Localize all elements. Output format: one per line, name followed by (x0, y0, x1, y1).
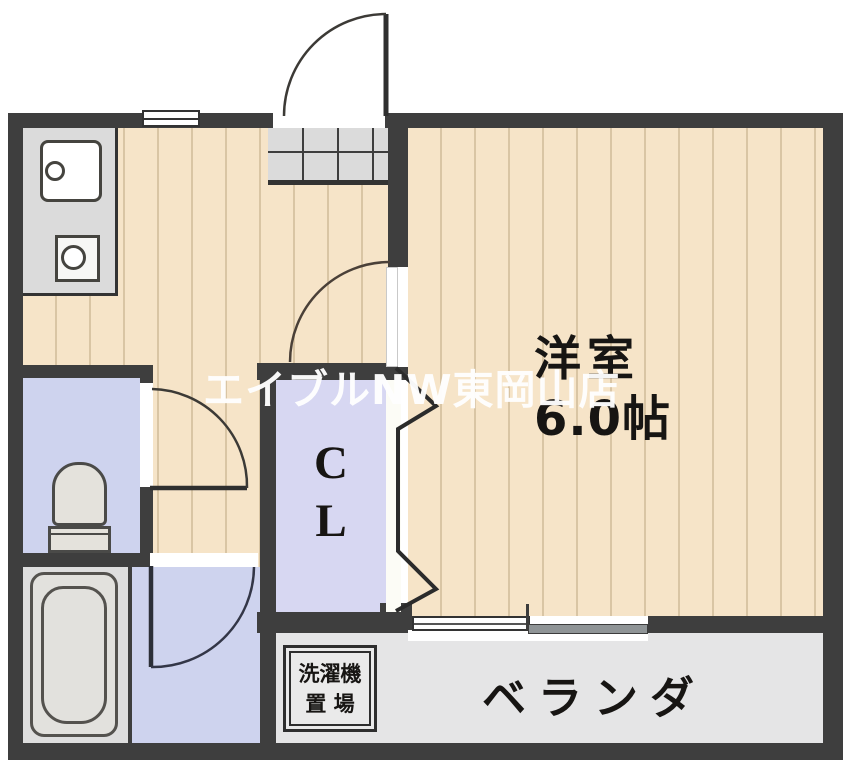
wall-outer-top (8, 113, 843, 128)
opening-washroom-door (150, 553, 258, 567)
floor-washroom (132, 567, 260, 743)
genkan-grid-line-h (268, 151, 388, 153)
veranda-label: ベランダ (482, 662, 706, 726)
wall-closet-left (260, 363, 276, 743)
wall-bath-separator (128, 567, 132, 743)
closet-label-l: L (308, 492, 354, 550)
wall-toilet-top (8, 365, 153, 378)
wall-outer-left (8, 113, 23, 760)
bathtub-inner (41, 586, 107, 724)
mainroom-door-leaf (386, 267, 398, 367)
veranda-window-right-panel (528, 624, 648, 634)
veranda-window-left-panel (412, 616, 530, 631)
wall-mainroom-left-upper (388, 128, 408, 267)
wall-washroom-top (8, 553, 150, 567)
genkan-step-edge (268, 180, 388, 185)
washing-machine-space-inner: 洗濯機 置 場 (289, 651, 371, 726)
entrance-door-arc (284, 14, 386, 116)
kitchen-window-rail (144, 118, 198, 120)
toilet-bowl (52, 462, 107, 526)
closet-label-c: C (308, 434, 354, 492)
wall-outer-right (823, 113, 843, 760)
kitchen-sink-faucet (45, 161, 65, 181)
floor-genkan (268, 128, 388, 184)
laundry-label-line1: 洗濯機 (299, 659, 362, 689)
opening-toilet-door (140, 383, 153, 487)
genkan-grid-line (302, 128, 304, 182)
wall-mainroom-bottom (648, 616, 823, 633)
wall-toilet-right-lower (140, 487, 153, 553)
toilet-tank (48, 526, 111, 553)
toilet-seat-line (50, 533, 109, 535)
wall-toilet-right-upper (140, 365, 153, 384)
genkan-grid-line (337, 128, 339, 182)
closet-label: C L (308, 434, 354, 550)
wall-outer-bottom (8, 743, 843, 760)
floorplan-canvas: 洗濯機 置 場 洋室 6.0帖 C L ベランダ エイブルNW東岡山店 (0, 0, 846, 762)
opening-entrance (273, 110, 385, 128)
veranda-window-left-rail (414, 623, 528, 625)
kitchen-window (142, 110, 200, 127)
genkan-grid-line (372, 128, 374, 182)
stove-burner-icon (61, 245, 86, 270)
veranda-window-stile (526, 604, 529, 630)
washing-machine-space: 洗濯機 置 場 (283, 645, 377, 732)
laundry-label-line2: 置 場 (305, 689, 354, 719)
store-watermark: エイブルNW東岡山店 (203, 356, 621, 416)
